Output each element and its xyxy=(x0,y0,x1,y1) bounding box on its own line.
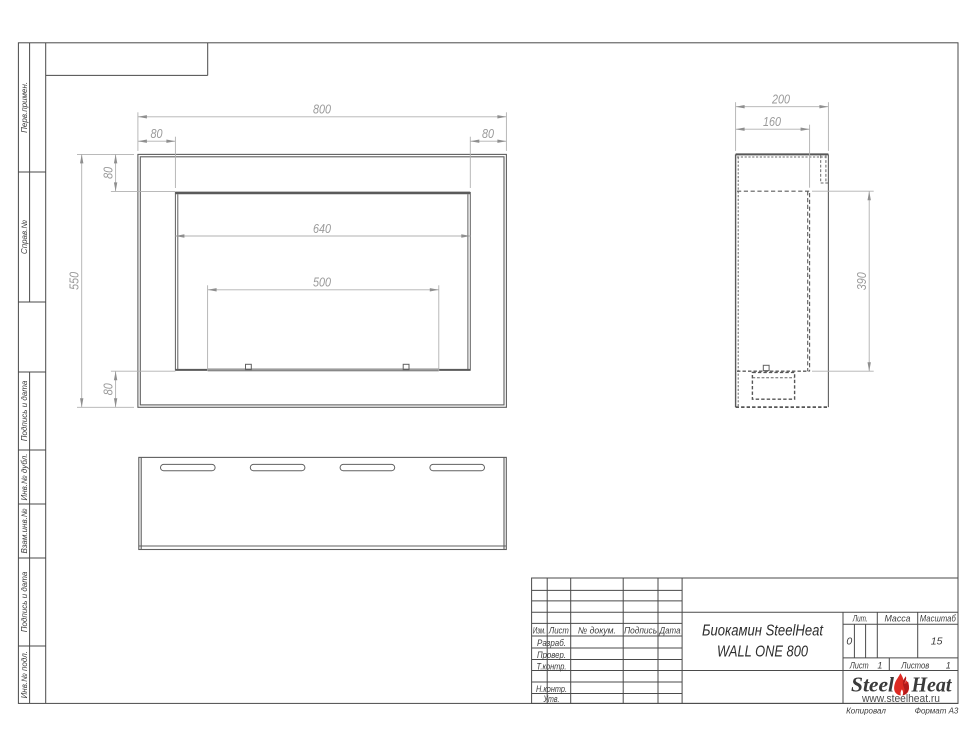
svg-text:Разраб.: Разраб. xyxy=(537,638,566,648)
svg-text:390: 390 xyxy=(854,272,869,291)
svg-text:80: 80 xyxy=(151,126,164,141)
svg-text:Взам.инв.№: Взам.инв.№ xyxy=(20,508,29,553)
svg-text:200: 200 xyxy=(771,92,790,107)
svg-text:Перв.примен.: Перв.примен. xyxy=(20,82,29,133)
svg-text:Подпись и дата: Подпись и дата xyxy=(20,571,29,632)
svg-text:80: 80 xyxy=(482,126,495,141)
svg-text:500: 500 xyxy=(313,275,332,290)
svg-text:Инв.№ подл.: Инв.№ подл. xyxy=(20,651,29,698)
svg-text:1: 1 xyxy=(877,660,882,670)
svg-text:Инв.№ дубл.: Инв.№ дубл. xyxy=(20,454,29,501)
svg-text:Подпись и дата: Подпись и дата xyxy=(20,380,29,441)
svg-text:Копировал: Копировал xyxy=(846,706,886,715)
svg-text:WALL ONE 800: WALL ONE 800 xyxy=(717,644,808,661)
svg-text:Масса: Масса xyxy=(885,614,911,624)
svg-text:550: 550 xyxy=(66,271,81,290)
svg-text:Листов: Листов xyxy=(900,660,929,670)
svg-text:Подпись: Подпись xyxy=(624,625,657,635)
svg-text:1: 1 xyxy=(946,660,951,670)
svg-text:Лит.: Лит. xyxy=(852,614,868,624)
svg-text:80: 80 xyxy=(100,166,115,179)
svg-text:№ докум.: № докум. xyxy=(578,625,616,635)
svg-text:0: 0 xyxy=(846,636,852,648)
svg-text:Лист: Лист xyxy=(548,625,569,635)
svg-text:Справ.№: Справ.№ xyxy=(20,220,29,254)
svg-text:640: 640 xyxy=(313,221,332,236)
svg-text:Биокамин SteelHeat: Биокамин SteelHeat xyxy=(702,623,824,640)
svg-text:800: 800 xyxy=(313,102,332,117)
svg-text:www.steelheat.ru: www.steelheat.ru xyxy=(861,693,940,705)
svg-text:160: 160 xyxy=(763,114,782,129)
svg-text:Дата: Дата xyxy=(659,625,681,635)
svg-text:Н.контр.: Н.контр. xyxy=(536,684,567,694)
svg-text:Изм.: Изм. xyxy=(533,625,546,635)
svg-text:Масштаб: Масштаб xyxy=(920,614,957,624)
svg-text:Лист: Лист xyxy=(849,660,869,670)
svg-text:Формат А3: Формат А3 xyxy=(915,706,959,715)
svg-text:Т.контр.: Т.контр. xyxy=(537,661,567,671)
svg-text:Провер.: Провер. xyxy=(537,650,566,660)
svg-text:15: 15 xyxy=(931,636,943,648)
svg-text:80: 80 xyxy=(100,383,115,396)
svg-text:Утв.: Утв. xyxy=(543,694,560,704)
